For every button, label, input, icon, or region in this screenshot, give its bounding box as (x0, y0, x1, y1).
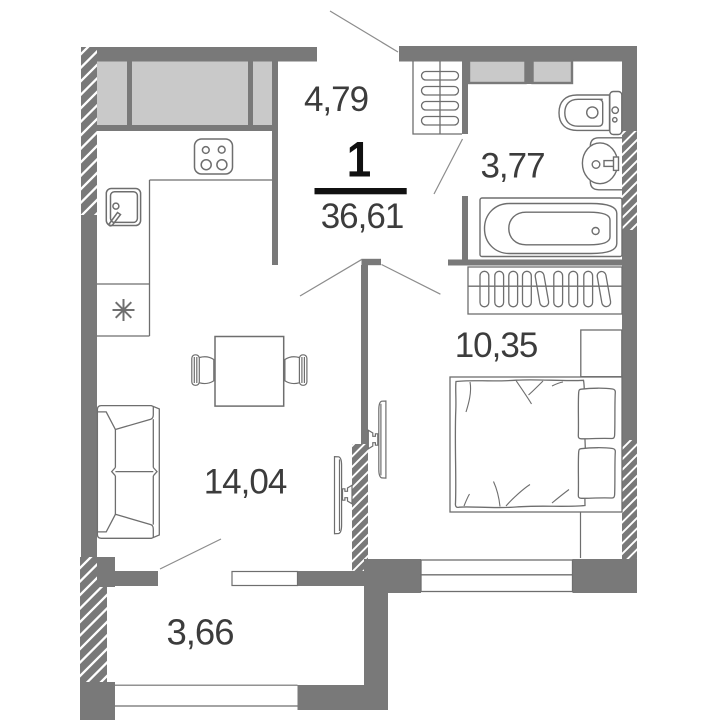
svg-text:1: 1 (347, 131, 371, 187)
svg-text:10,35: 10,35 (455, 326, 538, 365)
svg-text:4,79: 4,79 (304, 80, 368, 119)
svg-text:36,61: 36,61 (321, 197, 404, 236)
svg-text:3,66: 3,66 (166, 612, 233, 653)
svg-text:3,77: 3,77 (480, 147, 544, 186)
svg-text:14,04: 14,04 (204, 463, 287, 502)
